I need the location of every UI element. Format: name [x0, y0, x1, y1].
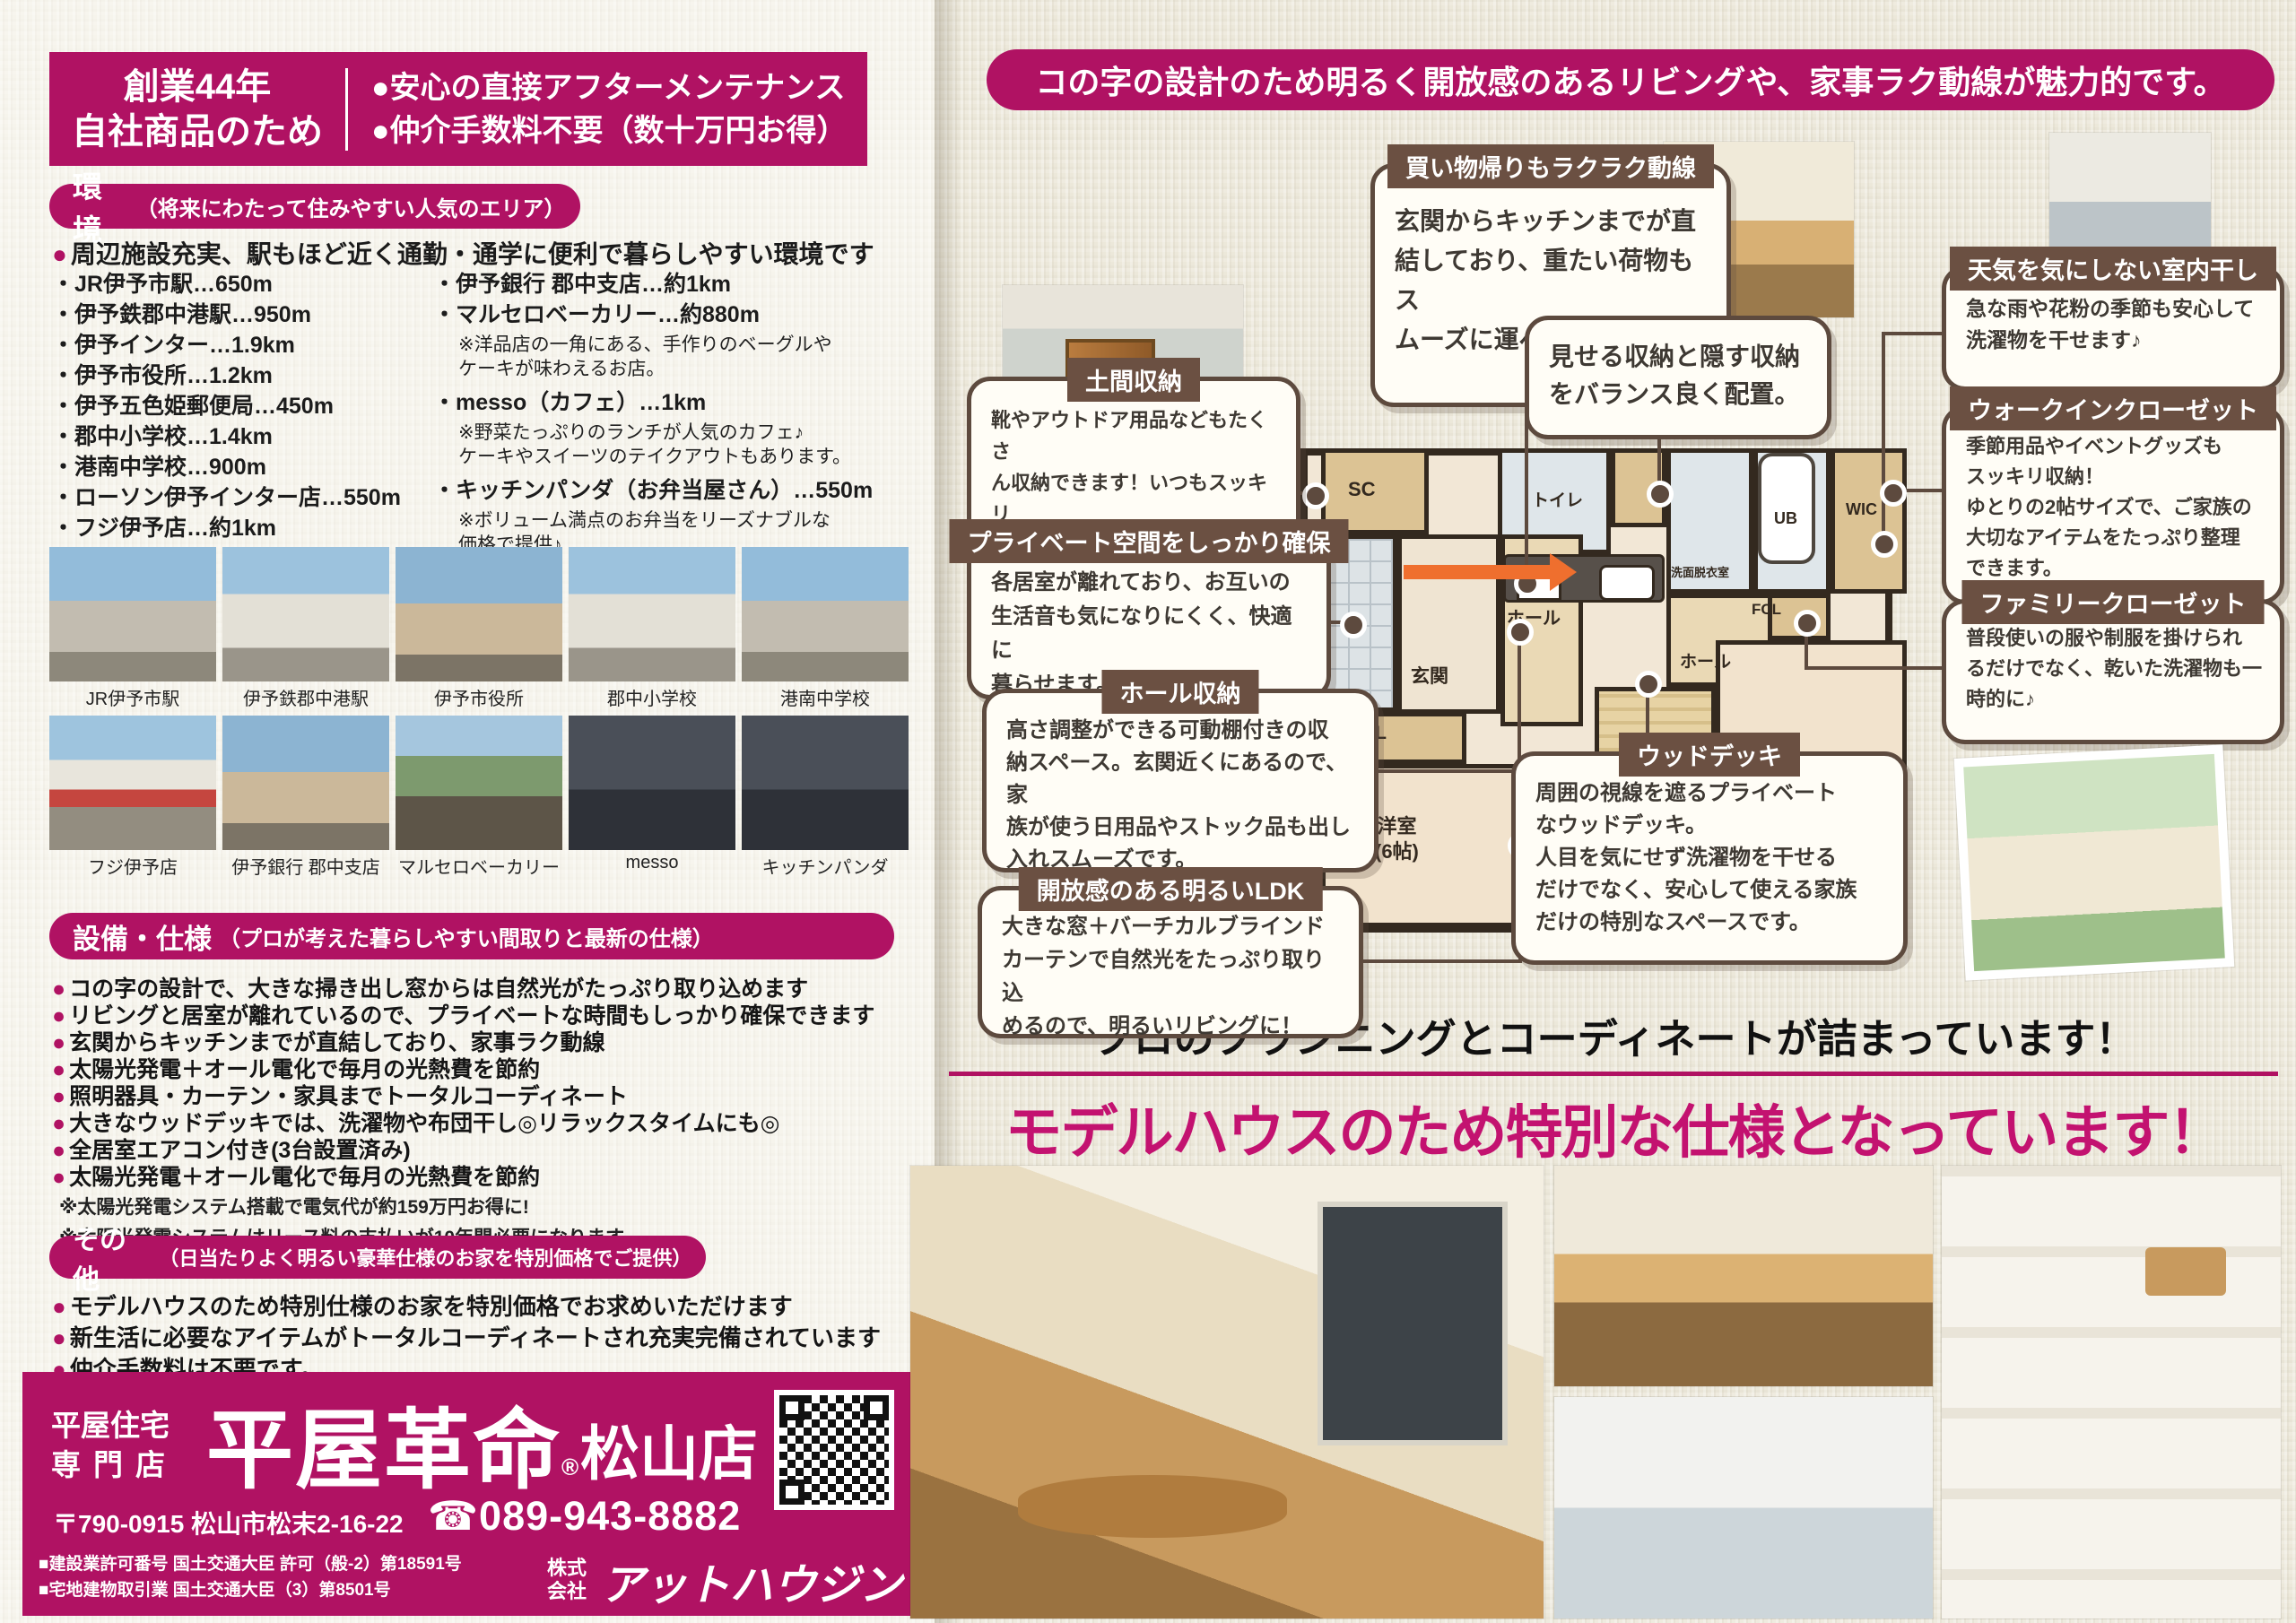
leader-dot — [1647, 481, 1674, 508]
leader-dot — [1635, 671, 1662, 698]
photo-marcelo-bakery — [396, 716, 562, 850]
bullet-dot-icon: ● — [52, 1029, 65, 1056]
photo-caption: 郡中小学校 — [569, 684, 735, 710]
other-section-header: その他 （日当たりよく明るい豪華仕様のお家を特別価格でご提供） — [49, 1236, 706, 1279]
callout-title: ホール収納 — [1102, 670, 1259, 714]
branch-name: 松山店 — [580, 1406, 758, 1492]
spec-item: ●全居室エアコン付き(3台設置済み) — [52, 1137, 913, 1164]
registered-mark: ® — [561, 1454, 580, 1480]
bullet-dot-icon: ● — [52, 240, 67, 268]
env-item: ・キッチンパンダ（お弁当屋さん）…550m — [433, 475, 926, 506]
photo-fuji-iyo-store — [49, 716, 216, 850]
photo-bathroom — [1554, 1397, 1933, 1619]
callout-walk-in-closet: ウォークインクローゼット 季節用品やイベントグッズも スッキリ収納！ ゆとりの2… — [1942, 405, 2284, 604]
env-note: ※野菜たっぷりのランチが人気のカフェ♪ ケーキやスイーツのテイクアウトもあります… — [433, 421, 926, 469]
address: 〒790-0915 松山市松末2-16-22 — [53, 1505, 404, 1541]
plan-label-genkan: 玄関 — [1411, 662, 1448, 689]
bullet-dot-icon: ● — [52, 1002, 65, 1029]
bullet-dot-icon: ● — [52, 1323, 66, 1354]
leader-line — [1805, 666, 1942, 670]
bullet-dot-icon: ● — [52, 976, 65, 1002]
callout-wood-deck: ウッドデッキ 周囲の視線を遮るプライベート なウッドデッキ。 人目を気にせず洗濯… — [1511, 751, 1908, 965]
plan-label-hall2: ホール — [1680, 648, 1731, 673]
photo-figure: 伊予市役所 — [396, 547, 562, 710]
other-title: その他 — [73, 1218, 152, 1297]
leader-dot — [1507, 619, 1534, 646]
leader-dot — [1340, 612, 1367, 638]
photo-iyotetsu-gunchuko-station — [222, 547, 389, 681]
flyer-page: 創業44年 自社商品のため ●安心の直接アフターメンテナンス ●仲介手数料不要（… — [0, 0, 2296, 1623]
photo-caption: 伊予市役所 — [396, 684, 562, 710]
leader-dot — [1302, 482, 1329, 509]
qr-marker — [864, 1395, 889, 1420]
callout-body: 周囲の視線を遮るプライベート なウッドデッキ。 人目を気にせず洗濯物を干せる だ… — [1516, 756, 1903, 953]
other-item: ●モデルハウスのため特別仕様のお家を特別価格でお求めいただけます — [52, 1291, 913, 1323]
callout-title: ウォークインクローゼット — [1950, 386, 2276, 430]
headline: モデルハウスのため特別な仕様となっています！ — [933, 1087, 2296, 1169]
phone-number: ☎089-943-8882 — [428, 1492, 741, 1540]
env-item: ・伊予銀行 郡中支店…約1km — [433, 269, 926, 299]
bullet-dot-icon: ● — [52, 1056, 65, 1083]
leader-dot — [1794, 610, 1821, 637]
table-graphic — [1018, 1475, 1287, 1538]
photo-messo-cafe — [569, 716, 735, 850]
photo-kitchen-counter — [1554, 1166, 1933, 1386]
header-line1: 創業44年 — [49, 65, 345, 109]
photo-iyo-city-hall — [396, 547, 562, 681]
callout-title: ファミリークローゼット — [1962, 580, 2265, 624]
bullet-dot-icon: ● — [52, 1137, 65, 1164]
qr-marker — [779, 1395, 804, 1420]
callout-body: 季節用品やイベントグッズも スッキリ収納！ ゆとりの2帖サイズで、ご家族の 大切… — [1946, 410, 2280, 598]
qr-marker — [779, 1480, 804, 1505]
callout-doma-storage: 土間収納 靴やアウトドア用品などもたくさ ん収納できます！いつもスッキリ した収… — [967, 377, 1300, 542]
spec-item: ●玄関からキッチンまでが直結しており、家事ラク動線 — [52, 1029, 913, 1056]
plan-walk-in-closet — [1831, 448, 1907, 594]
callout-title: プライベート空間をしっかり確保 — [950, 519, 1349, 563]
plan-label-sc: SC — [1348, 478, 1376, 501]
photo-figure: JR伊予市駅 — [49, 547, 216, 710]
photo-storage-shelves — [1942, 1166, 2281, 1619]
header-line2: 自社商品のため — [49, 109, 345, 154]
other-subtitle: （日当たりよく明るい豪華仕様のお家を特別価格でご提供） — [159, 1243, 683, 1271]
env-section-header: 環境 （将来にわたって住みやすい人気のエリア） — [49, 184, 580, 229]
company-prefix: 株式 会社 — [547, 1557, 587, 1603]
photo-figure: マルセロベーカリー — [396, 716, 562, 879]
brand-logo-text: 平屋革命® — [206, 1379, 580, 1506]
callout-hall-storage: ホール収納 高さ調整ができる可動棚付きの収 納スペース。玄関近くにあるので、家 … — [982, 689, 1378, 872]
callout-body: 大きな窓＋バーチカルブラインド カーテンで自然光をたっぷり取り込 めるので、明る… — [982, 890, 1359, 1057]
photo-caption: messo — [569, 853, 735, 873]
photo-figure: キッチンパンダ — [742, 716, 909, 879]
bullet-dot-icon: ● — [52, 1110, 65, 1137]
photo-figure: 郡中小学校 — [569, 547, 735, 710]
plan-bathtub — [1758, 453, 1815, 564]
spec-list: ●コの字の設計で、大きな掃き出し窓からは自然光がたっぷり取り込めます ●リビング… — [52, 976, 913, 1252]
photo-caption: キッチンパンダ — [742, 853, 909, 879]
bullet-dot-icon: ● — [52, 1083, 65, 1110]
leader-dot — [1880, 480, 1907, 507]
basket-graphic — [2145, 1247, 2226, 1296]
spec-item: ●照明器具・カーテン・家具までトータルコーディネート — [52, 1083, 913, 1110]
photo-caption: 港南中学校 — [742, 684, 909, 710]
spec-item: ●太陽光発電＋オール電化で毎月の光熱費を節約 — [52, 1164, 913, 1191]
photo-iyo-bank — [222, 716, 389, 850]
env-lead: ●周辺施設充実、駅もほど近く通勤・通学に便利で暮らしやすい環境です — [52, 235, 913, 271]
license2: ■宅地建物取引業 国土交通大臣（3）第8501号 — [39, 1577, 462, 1603]
photo-figure: 伊予銀行 郡中支店 — [222, 716, 389, 879]
right-top-banner: コの字の設計のため明るく開放感のあるリビングや、家事ラク動線が魅力的です。 — [987, 49, 2274, 110]
photo-family — [1954, 744, 2235, 980]
plan-label-toilet: トイレ — [1532, 487, 1583, 511]
spec-section-header: 設備・仕様 （プロが考えた暮らしやすい間取りと最新の仕様） — [49, 913, 894, 959]
window-graphic — [1318, 1202, 1508, 1445]
plan-label-wic: WIC — [1846, 500, 1877, 519]
leader-line — [1370, 769, 1520, 773]
photo-caption: 伊予銀行 郡中支店 — [222, 853, 389, 879]
env-item: ・伊予鉄郡中港駅…950m — [52, 299, 433, 330]
spec-item: ●太陽光発電＋オール電化で毎月の光熱費を節約 — [52, 1056, 913, 1083]
callout-bright-ldk: 開放感のある明るいLDK 大きな窓＋バーチカルブラインド カーテンで自然光をたっ… — [978, 886, 1363, 1038]
env-item: ・マルセロベーカリー…約880m — [433, 299, 926, 330]
photo-caption: フジ伊予店 — [49, 853, 216, 879]
callout-indoor-drying: 天気を気にしない室内干し 急な雨や花粉の季節も安心して 洗濯物を干せます♪ — [1942, 265, 2284, 391]
plan-label-room1: 洋室 (6帖) — [1375, 814, 1419, 864]
callout-family-closet: ファミリークローゼット 普段使いの服や制服を掛けられ るだけでなく、乾いた洗濯物… — [1942, 599, 2284, 744]
photo-caption: JR伊予市駅 — [49, 684, 216, 710]
photo-figure: 伊予鉄郡中港駅 — [222, 547, 389, 710]
header-right-text: ●安心の直接アフターメンテナンス ●仲介手数料不要（数十万円お得） — [348, 66, 867, 152]
env-column-right: ・伊予銀行 郡中支店…約1km ・マルセロベーカリー…約880m ※洋品店の一角… — [433, 269, 926, 563]
header-bullet2: ●仲介手数料不要（数十万円お得） — [371, 109, 867, 152]
bullet-dot-icon: ● — [52, 1164, 65, 1191]
flow-arrow-icon — [1404, 565, 1552, 579]
photo-figure: 港南中学校 — [742, 547, 909, 710]
photo-figure: messo — [569, 716, 735, 879]
spec-note: ※太陽光発電システム搭載で電気代が約159万円お得に! — [52, 1194, 913, 1221]
other-item: ●新生活に必要なアイテムがトータルコーディネートされ充実完備されています — [52, 1323, 913, 1354]
photo-figure: フジ伊予店 — [49, 716, 216, 879]
spec-item: ●リビングと居室が離れているので、プライベートな時間もしっかり確保できます — [52, 1002, 913, 1029]
plan-label-ub: UB — [1774, 509, 1797, 528]
plan-label-senmen: 洗面脱衣室 — [1671, 563, 1729, 580]
spec-title: 設備・仕様 — [73, 916, 212, 957]
env-item: ・郡中小学校…1.4km — [52, 421, 433, 452]
callout-title: 天気を気にしない室内干し — [1950, 247, 2276, 291]
qr-code — [774, 1390, 894, 1510]
env-columns: ・JR伊予市駅…650m ・伊予鉄郡中港駅…950m ・伊予インター…1.9km… — [52, 269, 926, 563]
plan-label-fcl: FCL — [1752, 601, 1781, 619]
license1: ■建設業許可番号 国土交通大臣 許可（般-2）第18591号 — [39, 1551, 462, 1577]
company-header-banner: 創業44年 自社商品のため ●安心の直接アフターメンテナンス ●仲介手数料不要（… — [49, 52, 867, 166]
env-item: ・港南中学校…900m — [52, 452, 433, 482]
bullet-dot-icon: ● — [52, 1291, 66, 1323]
leader-line — [1518, 628, 1521, 773]
company-name: アットハウジング — [601, 1549, 915, 1623]
footer-tag2: 専門店 — [51, 1445, 178, 1485]
callout-display-storage: 見せる収納と隠す収納 をバランス良く配置。 — [1525, 316, 1831, 439]
photo-gunchu-elementary — [569, 547, 735, 681]
photo-kitchen-panda — [742, 716, 909, 850]
license-numbers: ■建設業許可番号 国土交通大臣 許可（般-2）第18591号 ■宅地建物取引業 … — [39, 1551, 462, 1603]
env-item: ・フジ伊予店…約1km — [52, 513, 433, 543]
footer-tags: 平屋住宅 専門店 — [51, 1406, 178, 1485]
photo-konan-junior-high — [742, 547, 909, 681]
env-item: ・伊予五色姫郵便局…450m — [52, 391, 433, 421]
header-bullet1: ●安心の直接アフターメンテナンス — [371, 66, 867, 109]
photo-jr-iyoshi-station — [49, 547, 216, 681]
leader-line — [1354, 959, 1522, 963]
callout-body: 見せる収納と隠す収納 をバランス良く配置。 — [1529, 320, 1827, 428]
leader-line — [1882, 332, 1942, 335]
env-column-left: ・JR伊予市駅…650m ・伊予鉄郡中港駅…950m ・伊予インター…1.9km… — [52, 269, 433, 563]
photo-caption: 伊予鉄郡中港駅 — [222, 684, 389, 710]
env-item: ・JR伊予市駅…650m — [52, 269, 433, 299]
photo-utility-small — [2049, 133, 2211, 258]
env-subtitle: （将来にわたって住みやすい人気のエリア） — [136, 191, 557, 222]
qr-pattern — [779, 1395, 889, 1505]
footer-brand-block: 平屋住宅 専門店 平屋革命® 松山店 〒790-0915 松山市松末2-16-2… — [22, 1372, 915, 1616]
callout-body: 高さ調整ができる可動棚付きの収 納スペース。玄関近くにあるので、家 族が使う日用… — [987, 693, 1374, 890]
callout-title: ウッドデッキ — [1619, 733, 1800, 777]
header-left-text: 創業44年 自社商品のため — [49, 65, 345, 154]
leader-line — [1882, 332, 1885, 538]
spec-subtitle: （プロが考えた暮らしやすい間取りと最新の仕様） — [219, 921, 714, 952]
spec-item: ●コの字の設計で、大きな掃き出し窓からは自然光がたっぷり取り込めます — [52, 976, 913, 1002]
env-item: ・伊予インター…1.9km — [52, 330, 433, 360]
photo-caption: マルセロベーカリー — [396, 853, 562, 879]
env-item: ・messo（カフェ）…1km — [433, 387, 926, 418]
footer-tag1: 平屋住宅 — [51, 1406, 178, 1445]
callout-title: 買い物帰りもラクラク動線 — [1387, 144, 1714, 188]
photo-dining-room — [910, 1166, 1544, 1619]
divider-rule — [949, 1072, 2278, 1076]
env-note: ※洋品店の一角にある、手作りのベーグルや ケーキが味わえるお店。 — [433, 333, 926, 381]
callout-title: 土間収納 — [1067, 358, 1200, 402]
spec-item: ●大きなウッドデッキでは、洗濯物や布団干し◎リラックスタイムにも◎ — [52, 1110, 913, 1137]
leader-dot — [1871, 531, 1898, 558]
callout-title: 開放感のある明るいLDK — [1019, 867, 1323, 911]
env-item: ・伊予市役所…1.2km — [52, 360, 433, 391]
plan-sink — [1599, 565, 1655, 601]
photo-row-2: フジ伊予店 伊予銀行 郡中支店 マルセロベーカリー messo キッチンパンダ — [49, 716, 915, 879]
env-item: ・ローソン伊予インター店…550m — [52, 482, 433, 513]
photo-row-1: JR伊予市駅 伊予鉄郡中港駅 伊予市役所 郡中小学校 港南中学校 — [49, 547, 915, 710]
